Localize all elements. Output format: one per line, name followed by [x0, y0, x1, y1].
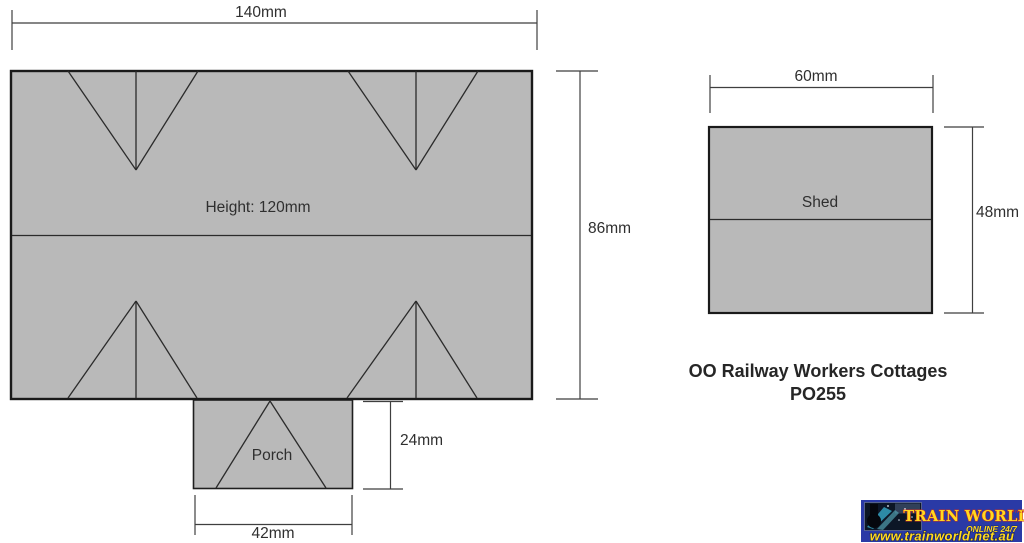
brand-suffix: PTY LTD [1012, 510, 1024, 514]
main-width-dimension-label: 140mm [235, 4, 287, 21]
shed-width-dimension-label: 60mm [794, 68, 837, 85]
shed-footprint: Shed [709, 127, 932, 313]
product-title: OO Railway Workers Cottages [689, 361, 948, 381]
building-height-label: Height: 120mm [205, 199, 310, 216]
porch-rect [194, 400, 353, 489]
photo-loco-boiler [867, 514, 881, 528]
shed-depth-dimension: 48mm [944, 127, 1019, 313]
product-caption: OO Railway Workers Cottages PO255 [689, 361, 948, 404]
trainworld-watermark: TRAIN WORLD PTY LTD ONLINE 24/7 www.trai… [861, 500, 1024, 543]
photo-speckle [887, 505, 889, 507]
porch-width-dimension-label: 42mm [251, 525, 294, 542]
porch-depth-dimension: 24mm [363, 402, 443, 490]
brand-wordmark: TRAIN WORLD [903, 508, 1024, 525]
shed-width-dimension: 60mm [710, 68, 933, 113]
diagram-svg: 140mm Porch Height: 120mm 86mm [0, 0, 1024, 543]
main-width-dimension: 140mm [12, 4, 537, 50]
footprint-diagram-page: 140mm Porch Height: 120mm 86mm [0, 0, 1024, 543]
porch-width-dimension: 42mm [195, 495, 352, 542]
porch-depth-dimension-label: 24mm [400, 432, 443, 449]
main-building-footprint: Height: 120mm [11, 71, 532, 399]
shed-label: Shed [802, 194, 838, 211]
banner-url: www.trainworld.net.au [870, 529, 1015, 543]
porch-label: Porch [252, 447, 293, 464]
photo-speckle [898, 519, 900, 521]
porch-footprint: Porch [194, 400, 353, 489]
product-code: PO255 [790, 384, 846, 404]
main-depth-dimension: 86mm [556, 71, 631, 399]
shed-depth-dimension-label: 48mm [976, 204, 1019, 221]
main-depth-dimension-label: 86mm [588, 220, 631, 237]
